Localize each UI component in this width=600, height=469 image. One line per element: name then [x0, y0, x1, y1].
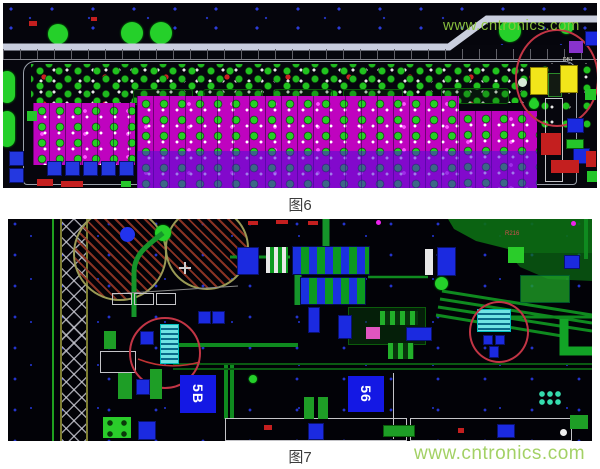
pad-blue	[585, 31, 597, 46]
ref-designator: R216	[505, 231, 519, 237]
ruler-ticks	[3, 49, 597, 60]
pad-round-white	[560, 429, 567, 436]
component-striped-white	[266, 247, 288, 273]
pad-blue	[308, 307, 320, 333]
pad-red	[541, 133, 561, 155]
component-green	[318, 397, 328, 419]
via-green	[435, 277, 448, 290]
via-magenta	[571, 221, 576, 226]
pad-blue	[47, 161, 62, 176]
figure7-pcb-image: R216 5B 56	[8, 219, 592, 441]
pad-purple	[569, 41, 583, 53]
component-green	[104, 331, 116, 349]
chip-5b-label: 5B	[190, 384, 206, 404]
chip-56: 56	[348, 376, 384, 412]
ref-mark-red	[248, 221, 258, 225]
pad-green-square	[121, 181, 131, 187]
capacitor-row	[300, 277, 366, 305]
pad-red	[37, 179, 53, 186]
chip-5b: 5B	[180, 375, 216, 413]
pad-pink	[366, 327, 380, 339]
pad-red	[61, 181, 83, 187]
pad-blue	[308, 423, 324, 440]
component-green	[570, 415, 588, 429]
via-magenta	[376, 220, 381, 225]
pad-red	[586, 151, 596, 167]
component-green-block	[520, 275, 570, 303]
pad-red	[551, 160, 579, 173]
edge-pad-green	[3, 111, 15, 147]
pad-blue	[338, 315, 352, 339]
pad-blue	[212, 311, 225, 324]
component-white	[425, 249, 433, 275]
component-green	[150, 369, 162, 399]
pad-blue	[497, 424, 515, 438]
pad-blue	[65, 161, 80, 176]
pad-green-square	[587, 171, 597, 182]
pad-row-green	[380, 311, 418, 325]
copper-pour-violet	[137, 151, 537, 188]
pad-blue	[567, 118, 584, 133]
component-green	[304, 397, 314, 419]
article-image-block: DB1 www.cntronics.com 图6	[0, 0, 600, 469]
ref-mark-red	[264, 425, 272, 430]
pad-blue	[9, 151, 24, 166]
pad-blue	[83, 161, 98, 176]
chip-56-label: 56	[358, 385, 374, 403]
pad-grid-teal	[538, 390, 562, 406]
pad-blue	[198, 311, 211, 324]
copper-pour-magenta	[33, 103, 135, 165]
ref-mark-red	[276, 220, 288, 224]
pad-green-square	[566, 139, 584, 149]
edge-pad-green	[3, 71, 15, 103]
pad-blue	[564, 255, 580, 269]
watermark-top: www.cntronics.com	[443, 17, 580, 34]
pad-green-bright	[508, 247, 524, 263]
pad-blue	[136, 379, 150, 395]
pad-blue	[138, 421, 156, 440]
silkscreen-box	[112, 293, 132, 305]
pad-green-square	[27, 111, 37, 121]
capacitor-row	[292, 246, 370, 275]
component-blue	[237, 247, 259, 275]
ref-mark-red	[458, 428, 464, 433]
annotation-circle-fig7-right	[469, 301, 529, 363]
pad-row-green	[388, 343, 414, 359]
watermark-bottom: www.cntronics.com	[414, 443, 585, 465]
via-small	[249, 375, 257, 383]
component-blue	[437, 247, 456, 276]
ref-mark-red	[308, 221, 318, 225]
pad-blue	[101, 161, 116, 176]
component-green	[118, 373, 132, 399]
component-green	[383, 425, 415, 437]
component-green-bright	[103, 417, 131, 438]
silkscreen-box	[134, 293, 154, 305]
pad-green-square	[585, 89, 596, 100]
silkscreen-box-long	[410, 418, 572, 441]
pad-blue	[406, 327, 432, 341]
pad-blue	[9, 168, 24, 183]
pad-blue	[119, 161, 134, 176]
silkscreen-box	[156, 293, 176, 305]
caption-figure6: 图6	[0, 194, 600, 215]
